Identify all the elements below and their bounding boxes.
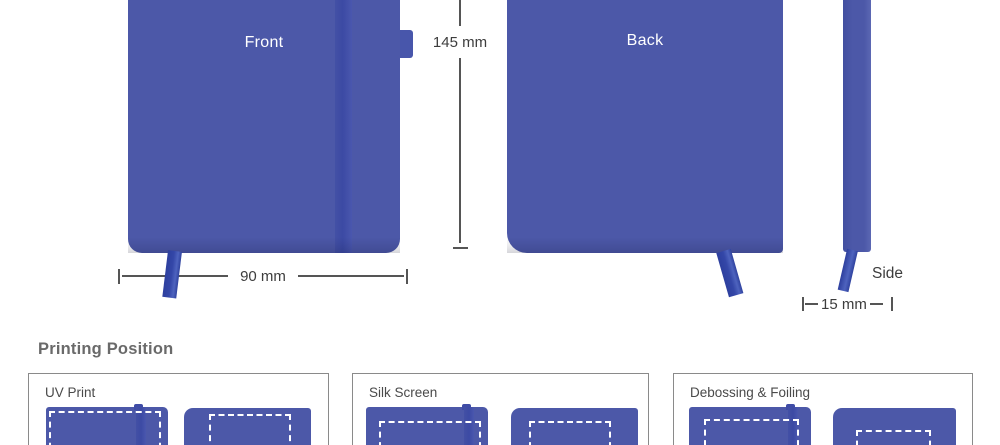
back-thumbnail (511, 408, 638, 445)
method-box-silk-screen: Silk Screen (352, 373, 649, 445)
print-area-outline (856, 430, 931, 445)
method-label: UV Print (45, 385, 95, 400)
notebook-front-view: Front (128, 0, 400, 253)
print-area-outline (529, 421, 611, 445)
back-thumbnail (833, 408, 956, 445)
page-edge-shading (507, 237, 783, 253)
printing-position-heading: Printing Position (38, 340, 173, 359)
pen-loop (400, 30, 413, 58)
print-area-outline (49, 411, 161, 445)
print-area-outline (209, 414, 291, 445)
front-view-label: Front (128, 34, 400, 52)
print-area-outline (704, 419, 799, 445)
height-dimension: 145 mm (452, 0, 468, 252)
ribbon-bookmark (838, 249, 858, 292)
height-dimension-label: 145 mm (433, 34, 487, 51)
dimension-tick (802, 297, 804, 311)
dimension-tick (406, 269, 408, 284)
product-spec-sheet: Front 145 mm 90 mm Back Side 15 mm Print… (0, 0, 1000, 445)
dimension-line (459, 0, 461, 26)
dimension-line (298, 275, 404, 277)
dimension-tick (118, 269, 120, 284)
notebook-back-view: Back (507, 0, 783, 253)
dimension-line (805, 303, 818, 305)
ribbon-bookmark (716, 249, 743, 297)
depth-dimension-label: 15 mm (819, 296, 869, 313)
method-label: Silk Screen (369, 385, 437, 400)
dimension-line (459, 58, 461, 243)
front-thumbnail (689, 407, 811, 445)
side-view-label: Side (872, 265, 903, 283)
ribbon-bookmark (162, 250, 182, 298)
width-dimension-label: 90 mm (230, 268, 296, 285)
back-view-label: Back (507, 32, 783, 50)
front-thumbnail (366, 407, 488, 445)
front-thumbnail (46, 407, 168, 445)
method-label: Debossing & Foiling (690, 385, 810, 400)
method-box-uv-print: UV Print (28, 373, 329, 445)
dimension-tick (891, 297, 893, 311)
back-thumbnail (184, 408, 311, 445)
dimension-tick (453, 247, 468, 249)
print-area-outline (379, 421, 481, 445)
dimension-line (870, 303, 883, 305)
depth-dimension: 15 mm (802, 296, 914, 312)
method-box-debossing-foiling: Debossing & Foiling (673, 373, 973, 445)
width-dimension: 90 mm (118, 268, 408, 284)
notebook-side-view (843, 0, 871, 252)
